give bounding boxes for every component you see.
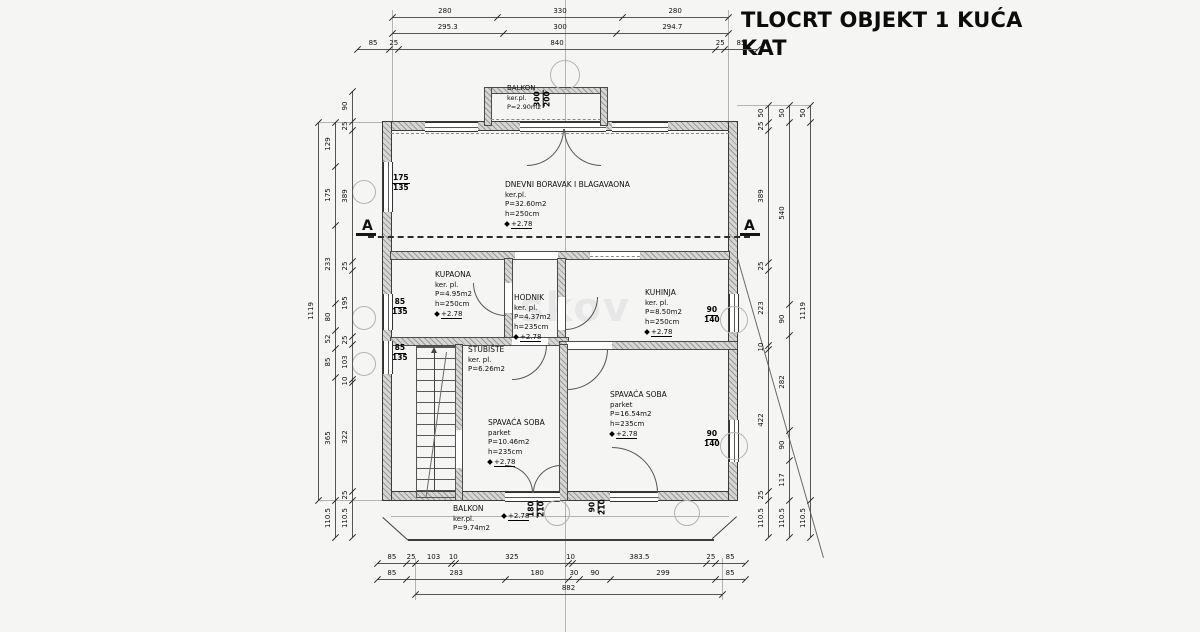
door-opening [567, 342, 612, 349]
dim-value: 389 [341, 189, 349, 202]
door-arc-balkon-b3 [612, 447, 658, 493]
room-height: h=235cm [514, 323, 551, 333]
room-floor: parket [610, 401, 667, 411]
wall-bedrooms [560, 345, 567, 500]
door-arc-spavaca2 [567, 349, 608, 390]
dim-value: 25 [757, 261, 765, 270]
room-label-kuhinja: KUHINJA ker. pl. P=8.50m2 h=250cm +2.78 [645, 288, 682, 338]
level-mark-icon [434, 311, 440, 317]
dim-value: 85 [736, 39, 745, 47]
room-floor: ker.pl. [505, 191, 630, 201]
dim-value: 85 [726, 553, 735, 561]
extension-line [722, 558, 723, 600]
kitchen-opening-dashed [590, 256, 640, 257]
dim-value: 50 [799, 109, 807, 118]
dim-value: 294.7 [662, 23, 682, 31]
dim-value: 110.5 [341, 508, 349, 528]
dim-line [318, 122, 319, 500]
room-name: HODNIK [514, 293, 551, 304]
dim-value: 110.5 [757, 508, 765, 528]
extension-line [318, 122, 383, 123]
dim-value: 175 [324, 188, 332, 201]
extension-line [737, 105, 811, 106]
dim-value: 85 [369, 39, 378, 47]
room-height: h=250cm [505, 210, 630, 220]
room-height: h=235cm [610, 420, 667, 430]
door-size-label: 90210 [589, 499, 607, 515]
drawing-title: TLOCRT OBJEKT 1 KUĆA KAT [741, 6, 1023, 63]
dim-value: 25 [341, 261, 349, 270]
room-area: P=4.37m2 [514, 313, 551, 323]
room-name: KUHINJA [645, 288, 682, 299]
door-size-label: 300200 [534, 90, 552, 108]
dim-line [377, 579, 745, 580]
dim-value: 85 [726, 569, 735, 577]
door-arc-balkon-b2 [533, 465, 561, 493]
room-label-balkon-bottom: BALKON ker.pl. P=9.74m2 [453, 504, 490, 534]
room-floor: ker.pl. [453, 515, 490, 525]
dim-value: 540 [778, 206, 786, 219]
dim-value: 85 [387, 553, 396, 561]
dim-value: 10 [566, 553, 575, 561]
door-opening [505, 283, 512, 313]
window-size-label: 85135 [392, 344, 408, 362]
dim-tick [332, 534, 339, 541]
dim-value: 25 [716, 39, 725, 47]
dim-value: 325 [505, 553, 518, 561]
marker-circle [674, 500, 700, 526]
room-height: h=235cm [488, 448, 545, 458]
dim-value: 365 [324, 431, 332, 444]
dim-value: 30 [569, 569, 578, 577]
dim-value: 90 [341, 102, 349, 111]
dim-value: 299 [656, 569, 669, 577]
section-label-right: A [744, 218, 755, 234]
dim-line [392, 33, 728, 34]
door-arc-balcony-right [564, 129, 601, 166]
door-arc-spavaca1 [512, 345, 547, 380]
level-mark-icon [501, 513, 507, 519]
dim-value: 422 [757, 413, 765, 426]
level-mark-icon [513, 334, 519, 340]
extension-line [415, 558, 416, 600]
room-floor: ker. pl. [514, 304, 551, 314]
extension-line [318, 500, 383, 501]
dim-value: 117 [778, 473, 786, 486]
window-size-label: 90140 [704, 430, 720, 448]
dim-tick [786, 534, 793, 541]
window-size-label: 90140 [704, 306, 720, 324]
room-name: BALKON [453, 504, 490, 515]
room-area: P=9.74m2 [453, 524, 490, 534]
dim-value: 25 [389, 39, 398, 47]
extension-line [392, 10, 393, 122]
room-floor: parket [488, 429, 545, 439]
balcony-bottom-corner-right [712, 516, 737, 539]
dim-value: 25 [757, 491, 765, 500]
level-mark-icon [644, 329, 650, 335]
room-level: +2.78 [505, 220, 630, 230]
dim-value: 25 [757, 122, 765, 131]
room-area: P=10.46m2 [488, 438, 545, 448]
window-size-label: 85135 [392, 298, 408, 316]
room-label-kupaona: KUPAONA ker. pl. P=4.95m2 h=250cm +2.78 [435, 270, 472, 320]
room-area: P=32.60m2 [505, 200, 630, 210]
window-top-left [425, 122, 478, 132]
room-name: SPAVAĆA SOBA [610, 390, 667, 401]
marker-circle [352, 352, 376, 376]
dim-line [789, 105, 790, 537]
dim-line [352, 91, 353, 537]
room-floor: ker. pl. [435, 281, 472, 291]
dim-value: 50 [757, 109, 765, 118]
dim-value: 283 [450, 569, 463, 577]
dim-value: 110.5 [778, 508, 786, 528]
room-height: h=250cm [645, 318, 682, 328]
room-level: +2.78 [610, 430, 667, 440]
room-name: KUPAONA [435, 270, 472, 281]
dim-value: 85 [387, 569, 396, 577]
staircase-direction-line [434, 352, 435, 492]
dim-value: 103 [427, 553, 440, 561]
balcony-bottom-edge [408, 539, 714, 541]
title-line1: TLOCRT OBJEKT 1 KUĆA [741, 6, 1023, 34]
section-label-left: A [362, 218, 373, 234]
dim-value: 295.3 [438, 23, 458, 31]
dim-value: 10 [341, 376, 349, 385]
window-size-label: 175135 [392, 174, 410, 192]
dim-value: 180 [531, 569, 544, 577]
dim-value: 110.5 [799, 508, 807, 528]
balcony-door-bottom-2 [610, 492, 658, 502]
dim-tick [349, 534, 356, 541]
dim-value: 85 [324, 358, 332, 367]
room-level: +2.78 [435, 310, 472, 320]
dim-value: 389 [757, 189, 765, 202]
door-arc-balkon-b1 [505, 465, 533, 493]
dim-value: 1119 [799, 302, 807, 320]
door-arc-kupaona [473, 283, 506, 316]
section-line [368, 236, 750, 238]
marker-circle [550, 60, 580, 90]
extension-line [728, 10, 729, 122]
dim-line [357, 49, 757, 50]
dim-value: 383.5 [629, 553, 649, 561]
dim-value: 882 [562, 584, 575, 592]
marker-circle [720, 306, 748, 334]
dim-value: 280 [668, 7, 681, 15]
room-level: +2.78 [645, 328, 682, 338]
room-height: h=250cm [435, 300, 472, 310]
marker-circle [352, 180, 376, 204]
door-arc-balcony-left [527, 129, 564, 166]
dim-value: 80 [324, 312, 332, 321]
room-name: DNEVNI BORAVAK I BLAGAVAONA [505, 180, 630, 191]
dim-line [768, 105, 769, 537]
room-level: +2.78 [488, 458, 545, 468]
dim-value: 129 [324, 137, 332, 150]
section-bar-right [740, 233, 760, 236]
window-top-right [612, 122, 668, 132]
door-opening [515, 252, 558, 259]
dim-value: 25 [341, 491, 349, 500]
dim-value: 300 [553, 23, 566, 31]
dim-value: 195 [341, 296, 349, 309]
dim-line [377, 563, 745, 564]
room-label-spavaca1: SPAVAĆA SOBA parket P=10.46m2 h=235cm +2… [488, 418, 545, 468]
dim-value: 52 [324, 335, 332, 344]
marker-circle [544, 500, 570, 526]
level-mark-icon [504, 221, 510, 227]
room-label-stubiste: STUBIŠTE ker. pl. P=6.26m2 [468, 345, 505, 375]
dim-line [392, 17, 728, 18]
balkon-bottom-level: +2.78 [502, 512, 529, 522]
dim-value: 90 [778, 315, 786, 324]
staircase-arrow-head [431, 347, 437, 353]
level-mark-icon [609, 431, 615, 437]
room-floor: ker. pl. [645, 299, 682, 309]
room-floor: ker. pl. [468, 356, 505, 366]
dim-value: 223 [757, 301, 765, 314]
wall-interior-living [391, 252, 729, 259]
room-label-hodnik: HODNIK ker. pl. P=4.37m2 h=235cm +2.78 [514, 293, 551, 343]
dim-value: 282 [778, 376, 786, 389]
dim-value: 25 [341, 335, 349, 344]
dim-value: 10 [449, 553, 458, 561]
marker-circle [352, 306, 376, 330]
dim-value: 1119 [307, 302, 315, 320]
section-bar-left [356, 233, 376, 236]
dim-value: 840 [550, 39, 563, 47]
room-label-spavaca2: SPAVAĆA SOBA parket P=16.54m2 h=235cm +2… [610, 390, 667, 440]
room-area: P=4.95m2 [435, 290, 472, 300]
balcony-top-dashed-line [491, 119, 601, 120]
dim-value: 90 [778, 441, 786, 450]
dim-tick [765, 534, 772, 541]
room-area: P=6.26m2 [468, 365, 505, 375]
door-opening [558, 297, 565, 330]
dim-value: 25 [706, 553, 715, 561]
dim-value: 280 [438, 7, 451, 15]
room-area: P=16.54m2 [610, 410, 667, 420]
dim-tick [807, 534, 814, 541]
floor-plan-scan: TLOCRT OBJEKT 1 KUĆA KAT skov [0, 0, 1200, 632]
room-level: +2.78 [514, 333, 551, 343]
room-name: STUBIŠTE [468, 345, 505, 356]
dim-value: 233 [324, 257, 332, 270]
marker-circle [720, 432, 748, 460]
dim-value: 322 [341, 430, 349, 443]
level-mark-icon [487, 459, 493, 465]
dim-value: 90 [590, 569, 599, 577]
room-area: P=8.50m2 [645, 308, 682, 318]
door-opening [456, 430, 462, 468]
wall-stair [456, 345, 462, 500]
title-line2: KAT [741, 34, 1023, 62]
room-label-dnevni: DNEVNI BORAVAK I BLAGAVAONA ker.pl. P=32… [505, 180, 630, 230]
balcony-bottom-corner-left [382, 517, 408, 540]
dim-line [810, 105, 811, 537]
dim-line [415, 594, 722, 595]
dim-value: 103 [341, 355, 349, 368]
balcony-top-wall-right [601, 88, 607, 125]
dim-value: 50 [778, 109, 786, 118]
dim-value: 10 [757, 343, 765, 352]
dim-value: 330 [553, 7, 566, 15]
dim-value: 110.5 [324, 508, 332, 528]
lintel-dashed-line [391, 133, 729, 134]
room-name: SPAVAĆA SOBA [488, 418, 545, 429]
door-size-label: 180210 [528, 500, 546, 518]
